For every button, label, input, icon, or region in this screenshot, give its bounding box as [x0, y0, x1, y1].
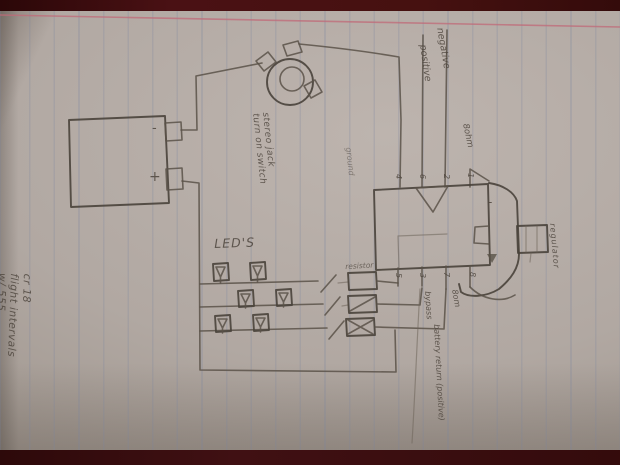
- leds-title: LED'S: [214, 236, 255, 251]
- margin-note-line3: w/ 555: [0, 273, 8, 312]
- pin-label-top-3: 2: [441, 174, 450, 179]
- speaker-impedance-top-label: 8ohm: [460, 123, 474, 149]
- ground-label: ground: [343, 147, 355, 176]
- pin-label-top-4: 1: [465, 173, 474, 178]
- bypass-label: bypass: [422, 291, 433, 320]
- regulator-label: regulator: [547, 223, 560, 269]
- margin-note-line2: flight intervals: [6, 273, 21, 357]
- battery-minus-label: -: [152, 122, 157, 136]
- pin-label-bottom-2: 3: [417, 273, 426, 278]
- negative-label: negative: [434, 27, 451, 70]
- pin-label-top-1: 4: [393, 174, 402, 179]
- handwritten-labels: - + stereo jack turn on switch negative …: [0, 0, 620, 465]
- margin-note-line1: cr 18: [20, 274, 33, 304]
- pin-label-bottom-3: 7: [441, 272, 450, 277]
- resistor-label: resistor: [345, 262, 374, 272]
- pin-label-bottom-1: 5: [393, 273, 402, 278]
- pin-label-top-2: 6: [417, 174, 426, 179]
- battery-plus-label: +: [149, 170, 161, 185]
- pin-label-bottom-4: 8: [467, 272, 476, 277]
- battery-return-label: battery return (positive): [431, 324, 445, 421]
- stereo-jack-note: stereo jack turn on switch: [249, 112, 276, 185]
- speaker-minus-label: -: [488, 196, 492, 209]
- margin-note: cr 18 flight intervals w/ 555: [0, 273, 33, 358]
- positive-label: positive: [417, 44, 433, 82]
- speaker-impedance-bottom-label: 8om: [449, 289, 461, 308]
- photo-of-circuit-sketch: { "scene": { "description": "hand-drawn …: [0, 0, 620, 465]
